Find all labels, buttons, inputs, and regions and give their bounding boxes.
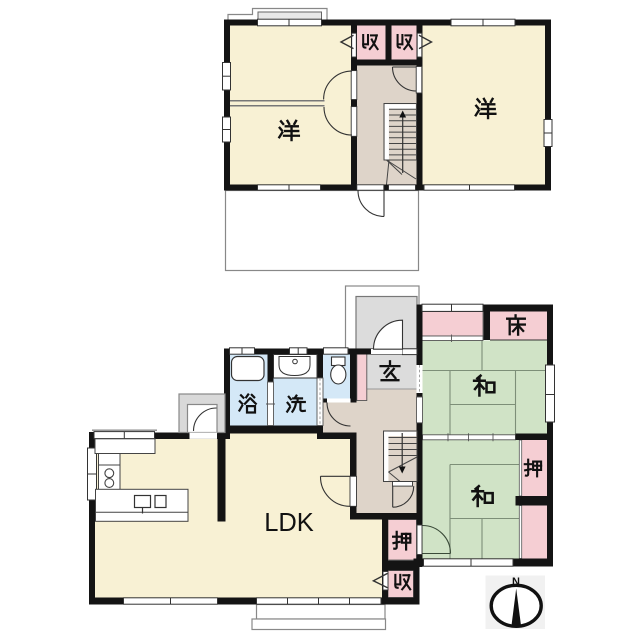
svg-text:N: N — [512, 576, 520, 588]
svg-text:LDK: LDK — [264, 509, 314, 537]
